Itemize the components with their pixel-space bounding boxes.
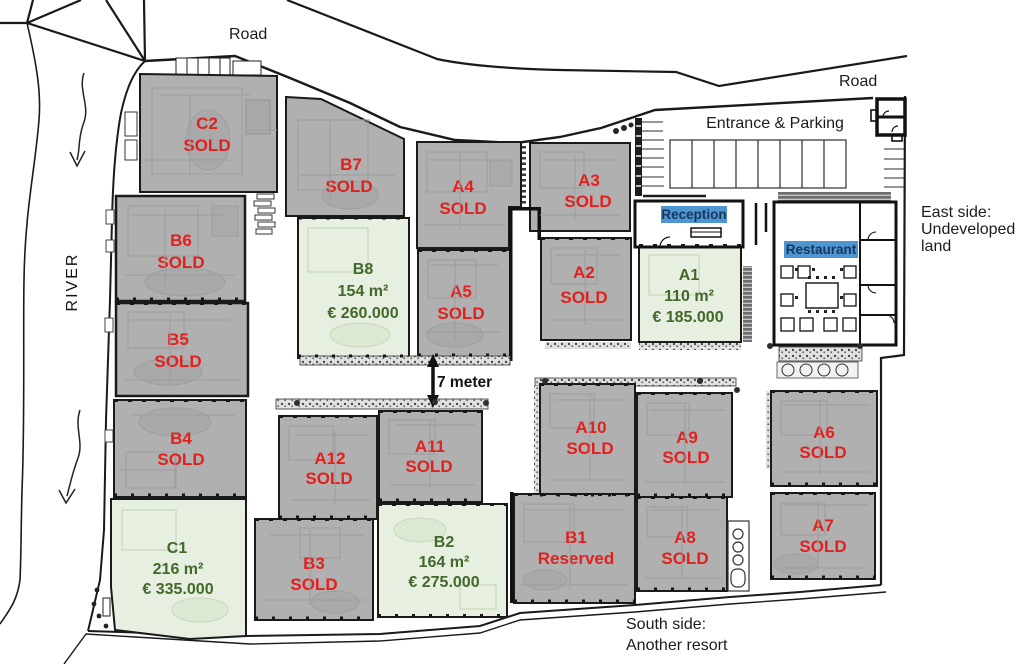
svg-text:€ 335.000: € 335.000 xyxy=(142,581,213,598)
svg-text:€ 185.000: € 185.000 xyxy=(652,309,723,326)
svg-text:B2: B2 xyxy=(434,534,455,551)
svg-text:Another resort: Another resort xyxy=(626,637,728,654)
svg-text:SOLD: SOLD xyxy=(799,537,846,556)
svg-text:SOLD: SOLD xyxy=(437,304,484,323)
svg-text:South side:: South side: xyxy=(626,616,706,633)
svg-text:A9: A9 xyxy=(676,428,698,447)
svg-text:SOLD: SOLD xyxy=(305,469,352,488)
svg-text:Restaurant: Restaurant xyxy=(786,242,857,257)
svg-text:Entrance & Parking: Entrance & Parking xyxy=(706,115,844,132)
svg-text:216 m²: 216 m² xyxy=(153,561,204,578)
svg-text:A1: A1 xyxy=(679,267,700,284)
svg-text:A10: A10 xyxy=(575,418,606,437)
svg-text:SOLD: SOLD xyxy=(662,448,709,467)
svg-text:B8: B8 xyxy=(353,261,374,278)
svg-text:SOLD: SOLD xyxy=(157,450,204,469)
svg-text:A7: A7 xyxy=(812,516,834,535)
svg-text:SOLD: SOLD xyxy=(560,288,607,307)
svg-text:164 m²: 164 m² xyxy=(419,554,470,571)
svg-text:7 meter: 7 meter xyxy=(437,374,492,391)
svg-text:A6: A6 xyxy=(813,423,835,442)
svg-text:A5: A5 xyxy=(450,282,472,301)
svg-text:SOLD: SOLD xyxy=(564,192,611,211)
svg-text:SOLD: SOLD xyxy=(799,443,846,462)
svg-text:B6: B6 xyxy=(170,231,192,250)
svg-text:SOLD: SOLD xyxy=(157,253,204,272)
svg-text:€ 275.000: € 275.000 xyxy=(408,574,479,591)
svg-text:110 m²: 110 m² xyxy=(664,288,714,305)
svg-text:C2: C2 xyxy=(196,114,218,133)
svg-text:B1: B1 xyxy=(565,528,587,547)
svg-text:A3: A3 xyxy=(578,171,600,190)
svg-text:B3: B3 xyxy=(303,554,325,573)
svg-text:Road: Road xyxy=(229,26,267,43)
svg-text:SOLD: SOLD xyxy=(661,549,708,568)
svg-text:Reception: Reception xyxy=(661,207,726,222)
svg-text:€ 260.000: € 260.000 xyxy=(327,305,398,322)
svg-text:SOLD: SOLD xyxy=(439,199,486,218)
svg-text:Road: Road xyxy=(839,73,877,90)
svg-text:A8: A8 xyxy=(674,528,696,547)
svg-text:C1: C1 xyxy=(167,540,188,557)
svg-text:A12: A12 xyxy=(314,449,345,468)
svg-text:SOLD: SOLD xyxy=(325,177,372,196)
svg-text:A4: A4 xyxy=(452,177,474,196)
svg-text:land: land xyxy=(921,238,951,255)
svg-text:SOLD: SOLD xyxy=(290,575,337,594)
svg-text:RIVER: RIVER xyxy=(64,253,81,312)
svg-text:East side:: East side: xyxy=(921,204,991,221)
svg-text:154 m²: 154 m² xyxy=(338,283,389,300)
svg-text:SOLD: SOLD xyxy=(154,352,201,371)
svg-text:B4: B4 xyxy=(170,429,192,448)
svg-text:Undeveloped: Undeveloped xyxy=(921,221,1015,238)
svg-text:A2: A2 xyxy=(573,263,595,282)
svg-text:SOLD: SOLD xyxy=(405,457,452,476)
svg-text:B7: B7 xyxy=(340,155,362,174)
svg-text:Reserved: Reserved xyxy=(538,549,615,568)
